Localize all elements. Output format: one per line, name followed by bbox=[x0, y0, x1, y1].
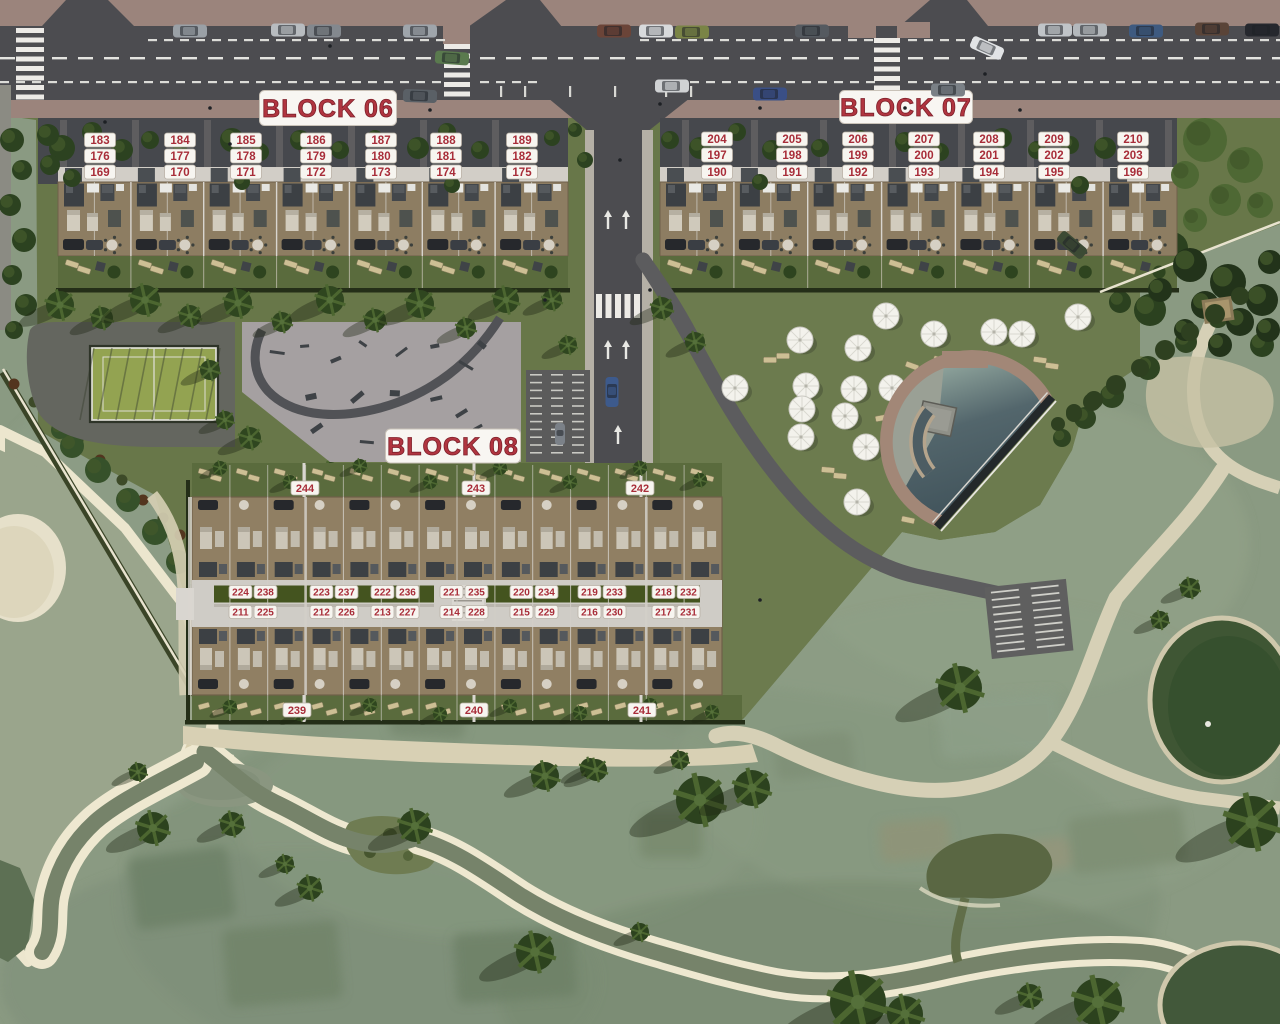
svg-text:181: 181 bbox=[436, 151, 456, 163]
svg-text:239: 239 bbox=[288, 705, 306, 717]
svg-text:195: 195 bbox=[1044, 167, 1064, 179]
svg-text:173: 173 bbox=[371, 167, 390, 179]
svg-text:220: 220 bbox=[513, 588, 530, 599]
svg-text:199: 199 bbox=[848, 150, 867, 162]
svg-text:184: 184 bbox=[170, 135, 190, 147]
svg-text:179: 179 bbox=[306, 151, 325, 163]
svg-text:231: 231 bbox=[680, 608, 697, 619]
svg-text:224: 224 bbox=[232, 588, 249, 599]
svg-text:217: 217 bbox=[655, 608, 672, 619]
svg-text:234: 234 bbox=[538, 588, 555, 599]
svg-text:185: 185 bbox=[236, 135, 256, 147]
svg-text:180: 180 bbox=[371, 151, 390, 163]
svg-text:223: 223 bbox=[313, 588, 330, 599]
svg-text:221: 221 bbox=[443, 588, 460, 599]
svg-text:237: 237 bbox=[338, 588, 355, 599]
svg-text:230: 230 bbox=[606, 608, 623, 619]
svg-text:233: 233 bbox=[606, 588, 623, 599]
svg-text:210: 210 bbox=[1123, 134, 1142, 146]
svg-text:183: 183 bbox=[90, 135, 109, 147]
svg-text:235: 235 bbox=[468, 588, 485, 599]
svg-text:219: 219 bbox=[581, 588, 598, 599]
svg-text:182: 182 bbox=[512, 151, 531, 163]
svg-text:215: 215 bbox=[513, 608, 530, 619]
svg-text:227: 227 bbox=[399, 608, 416, 619]
svg-text:236: 236 bbox=[399, 588, 416, 599]
svg-text:175: 175 bbox=[512, 167, 532, 179]
svg-text:240: 240 bbox=[465, 705, 483, 717]
svg-text:218: 218 bbox=[655, 588, 672, 599]
svg-text:238: 238 bbox=[257, 588, 274, 599]
svg-text:190: 190 bbox=[707, 167, 726, 179]
svg-text:205: 205 bbox=[782, 134, 802, 146]
svg-text:206: 206 bbox=[848, 134, 867, 146]
svg-text:216: 216 bbox=[581, 608, 598, 619]
svg-text:232: 232 bbox=[680, 588, 697, 599]
svg-text:225: 225 bbox=[257, 608, 274, 619]
svg-text:186: 186 bbox=[306, 135, 325, 147]
svg-text:196: 196 bbox=[1123, 167, 1142, 179]
svg-text:228: 228 bbox=[468, 608, 485, 619]
svg-text:198: 198 bbox=[782, 150, 802, 162]
svg-text:214: 214 bbox=[443, 608, 460, 619]
svg-text:244: 244 bbox=[296, 483, 315, 495]
svg-text:172: 172 bbox=[306, 167, 325, 179]
svg-text:209: 209 bbox=[1044, 134, 1063, 146]
svg-text:203: 203 bbox=[1123, 150, 1142, 162]
svg-text:242: 242 bbox=[631, 483, 649, 495]
svg-text:200: 200 bbox=[914, 150, 933, 162]
svg-text:207: 207 bbox=[914, 134, 933, 146]
svg-text:188: 188 bbox=[436, 135, 456, 147]
svg-text:177: 177 bbox=[170, 151, 189, 163]
svg-text:226: 226 bbox=[338, 608, 355, 619]
svg-text:229: 229 bbox=[538, 608, 555, 619]
svg-text:171: 171 bbox=[236, 167, 256, 179]
svg-text:208: 208 bbox=[979, 134, 999, 146]
svg-text:201: 201 bbox=[979, 150, 999, 162]
svg-text:243: 243 bbox=[467, 483, 485, 495]
svg-text:189: 189 bbox=[512, 135, 531, 147]
svg-text:202: 202 bbox=[1044, 150, 1063, 162]
svg-text:169: 169 bbox=[90, 167, 109, 179]
svg-text:222: 222 bbox=[374, 588, 391, 599]
svg-text:187: 187 bbox=[371, 135, 390, 147]
svg-text:212: 212 bbox=[313, 608, 330, 619]
svg-text:170: 170 bbox=[170, 167, 189, 179]
svg-text:211: 211 bbox=[232, 608, 249, 619]
svg-text:174: 174 bbox=[436, 167, 456, 179]
svg-text:BLOCK 06: BLOCK 06 bbox=[262, 95, 394, 123]
svg-text:178: 178 bbox=[236, 151, 256, 163]
svg-text:194: 194 bbox=[979, 167, 999, 179]
svg-text:204: 204 bbox=[707, 134, 727, 146]
svg-text:241: 241 bbox=[633, 705, 651, 717]
svg-text:176: 176 bbox=[90, 151, 109, 163]
svg-text:BLOCK 08: BLOCK 08 bbox=[387, 433, 519, 461]
svg-text:213: 213 bbox=[374, 608, 391, 619]
svg-text:193: 193 bbox=[914, 167, 933, 179]
svg-text:192: 192 bbox=[848, 167, 867, 179]
svg-text:191: 191 bbox=[782, 167, 802, 179]
svg-text:197: 197 bbox=[707, 150, 726, 162]
